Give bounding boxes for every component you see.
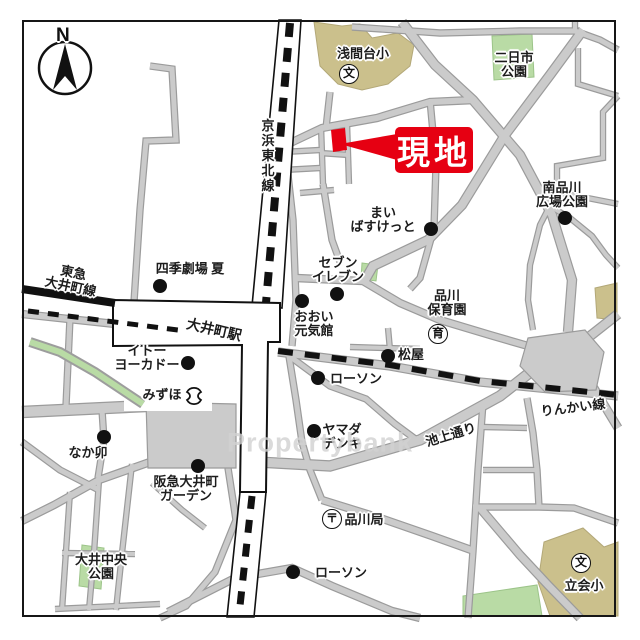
bank-symbol-icon [183, 385, 205, 407]
watermark: Propertybank [227, 428, 413, 459]
map-label-keihin-tohoku-line: 京浜東北線 [261, 119, 274, 194]
green-south [463, 585, 542, 616]
map-label-futsukaichi-park: 二日市 公園 [494, 51, 533, 79]
poi-dot-shiki-theatre-natsu [153, 279, 167, 293]
map-label-shinagawa-post-office: 品川局 [344, 513, 383, 527]
school-symbol-icon: 文 [339, 64, 359, 84]
map-canvas: N 京浜東北線東急 大井町線四季劇場 夏浅間台小二日市 公園南品川 広場公園まい… [0, 0, 640, 640]
map-label-my-basket: まい ばすけっと [350, 206, 415, 234]
map-label-shinagawa-hoikuen: 品川 保育園 [427, 289, 466, 317]
map-label-nakau: なか卯 [68, 446, 107, 460]
map-label-tachiai-elementary: 立会小 [564, 579, 603, 593]
poi-dot-my-basket [424, 222, 438, 236]
map-label-ito-yokado: イトー ヨーカドー [114, 344, 179, 372]
map-label-matsuya: 松屋 [398, 348, 424, 362]
poi-dot-nakau [97, 430, 111, 444]
poi-dot-ooi-genkikan [295, 294, 309, 308]
map-label-seven-eleven: セブン イレブン [312, 256, 364, 284]
poi-dot-hankyu-oimachi-garden [191, 459, 205, 473]
map-label-ooi-genkikan: おおい 元気館 [294, 310, 333, 338]
post-office-symbol-icon: 〒 [322, 509, 342, 529]
map-label-minami-shinagawa-hiroba-park: 南品川 広場公園 [536, 181, 588, 209]
nursery-symbol-icon: 育 [428, 324, 448, 344]
map-label-shiki-theatre-natsu: 四季劇場 夏 [156, 262, 225, 276]
site-callout: 現地 [395, 127, 473, 173]
compass-icon [39, 42, 91, 94]
map-label-oi-chuo-park: 大井中央 公園 [75, 553, 127, 581]
map-label-mizuho: みずほ [142, 388, 181, 402]
poi-dot-lawson-upper [311, 371, 325, 385]
poi-dot-lawson-lower [286, 565, 300, 579]
map-label-lawson-lower: ローソン [315, 566, 367, 580]
poi-dot-ito-yokado [181, 356, 195, 370]
station-plaza [146, 402, 236, 468]
map-label-lawson-upper: ローソン [330, 372, 382, 386]
poi-dot-matsuya [381, 349, 395, 363]
map-label-sengendai-elementary: 浅間台小 [337, 47, 389, 61]
poi-dot-minami-shinagawa-hiroba-park [558, 211, 572, 225]
compass-north-label: N [56, 26, 70, 47]
poi-dot-seven-eleven [330, 287, 344, 301]
school-symbol-icon: 文 [571, 553, 591, 573]
map-label-hankyu-oimachi-garden: 阪急大井町 ガーデン [153, 475, 218, 503]
